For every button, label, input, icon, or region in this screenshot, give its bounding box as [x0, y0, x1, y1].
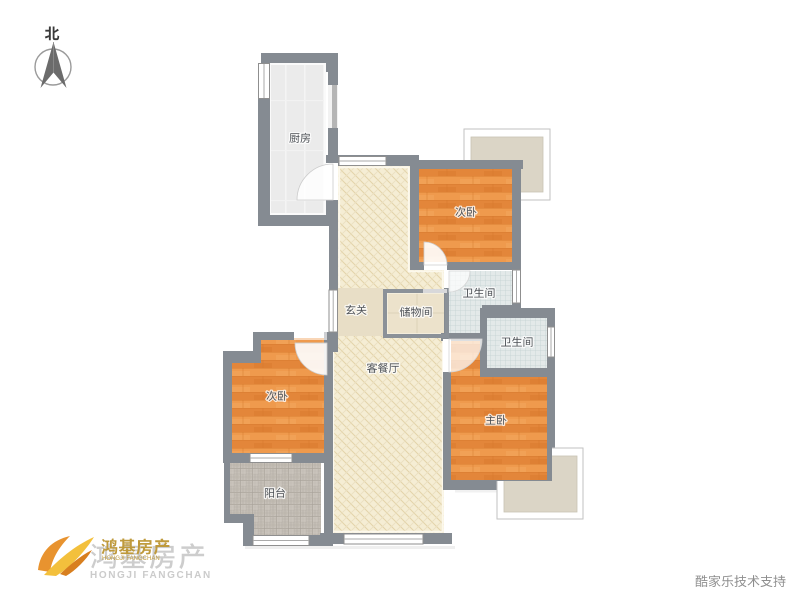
svg-text:HONGJI FANGCHAN: HONGJI FANGCHAN [90, 570, 212, 581]
svg-text:HONGJI FANGCHAN: HONGJI FANGCHAN [102, 556, 160, 562]
